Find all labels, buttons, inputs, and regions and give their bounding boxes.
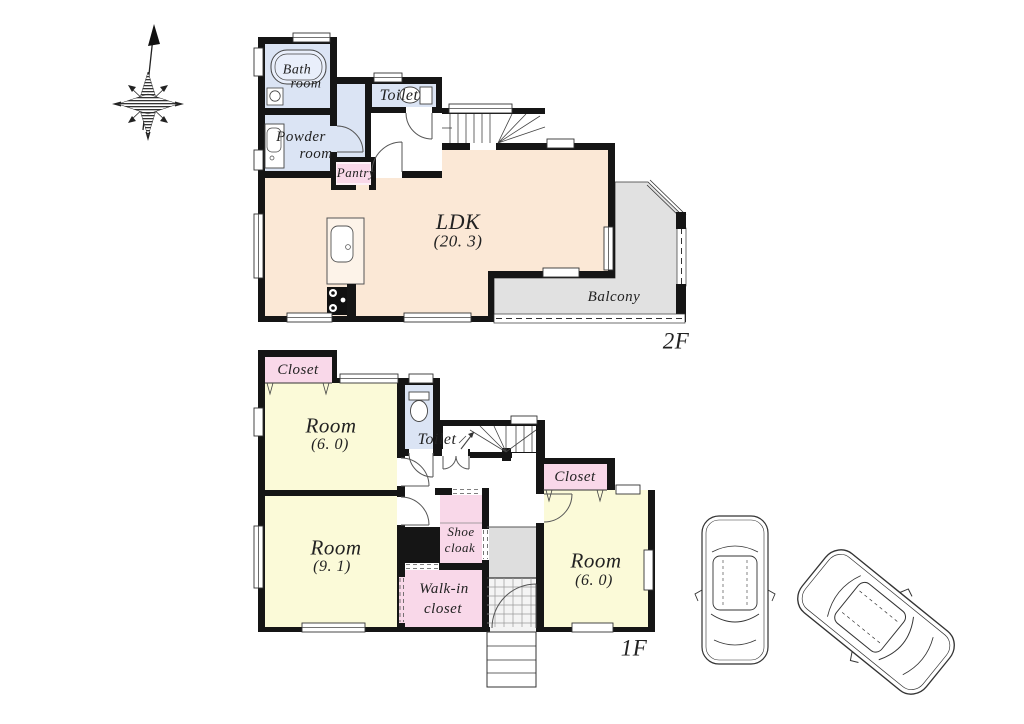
car-top-view-rotated [785,536,967,708]
floor-1f-plan [254,350,655,687]
floor-tag-1f: 1F [621,635,648,660]
entrance-hall-area [487,527,536,578]
label-closet-e: Closet [554,469,595,486]
label-room-b-size: (9. 1) [313,558,351,576]
label-room-a-size: (6. 0) [311,436,349,454]
stairs-1f-area [443,426,536,452]
label-ldk-name: LDK [436,210,480,234]
floor-plan-canvas: Bath room Toilet Powder room Pantry LDK … [0,0,1024,724]
label-room-c-size: (6. 0) [575,572,613,590]
label-closet-nw: Closet [277,362,318,379]
label-shoe-line2: cloak [445,541,476,555]
walk-in-closet-area [404,570,482,627]
label-room-b-name: Room [311,536,362,559]
stairs-2f-area [442,114,545,143]
label-powder-line1: Powder [276,129,326,146]
label-room-c-name: Room [571,549,622,572]
parking-cars [695,516,967,708]
toilet-icon-1f [409,392,429,422]
label-walkin-line1: Walk-in [419,581,469,598]
label-powder-line2: room [299,146,332,163]
label-walkin-line2: closet [424,601,462,618]
label-bath-line2: room [290,76,321,91]
label-shoe-line1: Shoe [447,525,474,539]
hall-2f-area [371,113,442,171]
label-pantry: Pantry [337,166,375,180]
floor-tag-2f: 2F [663,328,690,353]
car-top-view [695,516,775,664]
porch-steps [487,632,536,687]
label-toilet-1f: Toilet [418,431,457,449]
label-ldk-size: (20. 3) [434,233,483,252]
genkan-area [487,578,536,627]
floor-plan-drawing [0,0,1024,724]
label-toilet-2f: Toilet [380,87,419,105]
label-room-a-name: Room [306,414,357,437]
label-balcony: Balcony [588,289,641,306]
north-compass-icon [112,24,184,141]
